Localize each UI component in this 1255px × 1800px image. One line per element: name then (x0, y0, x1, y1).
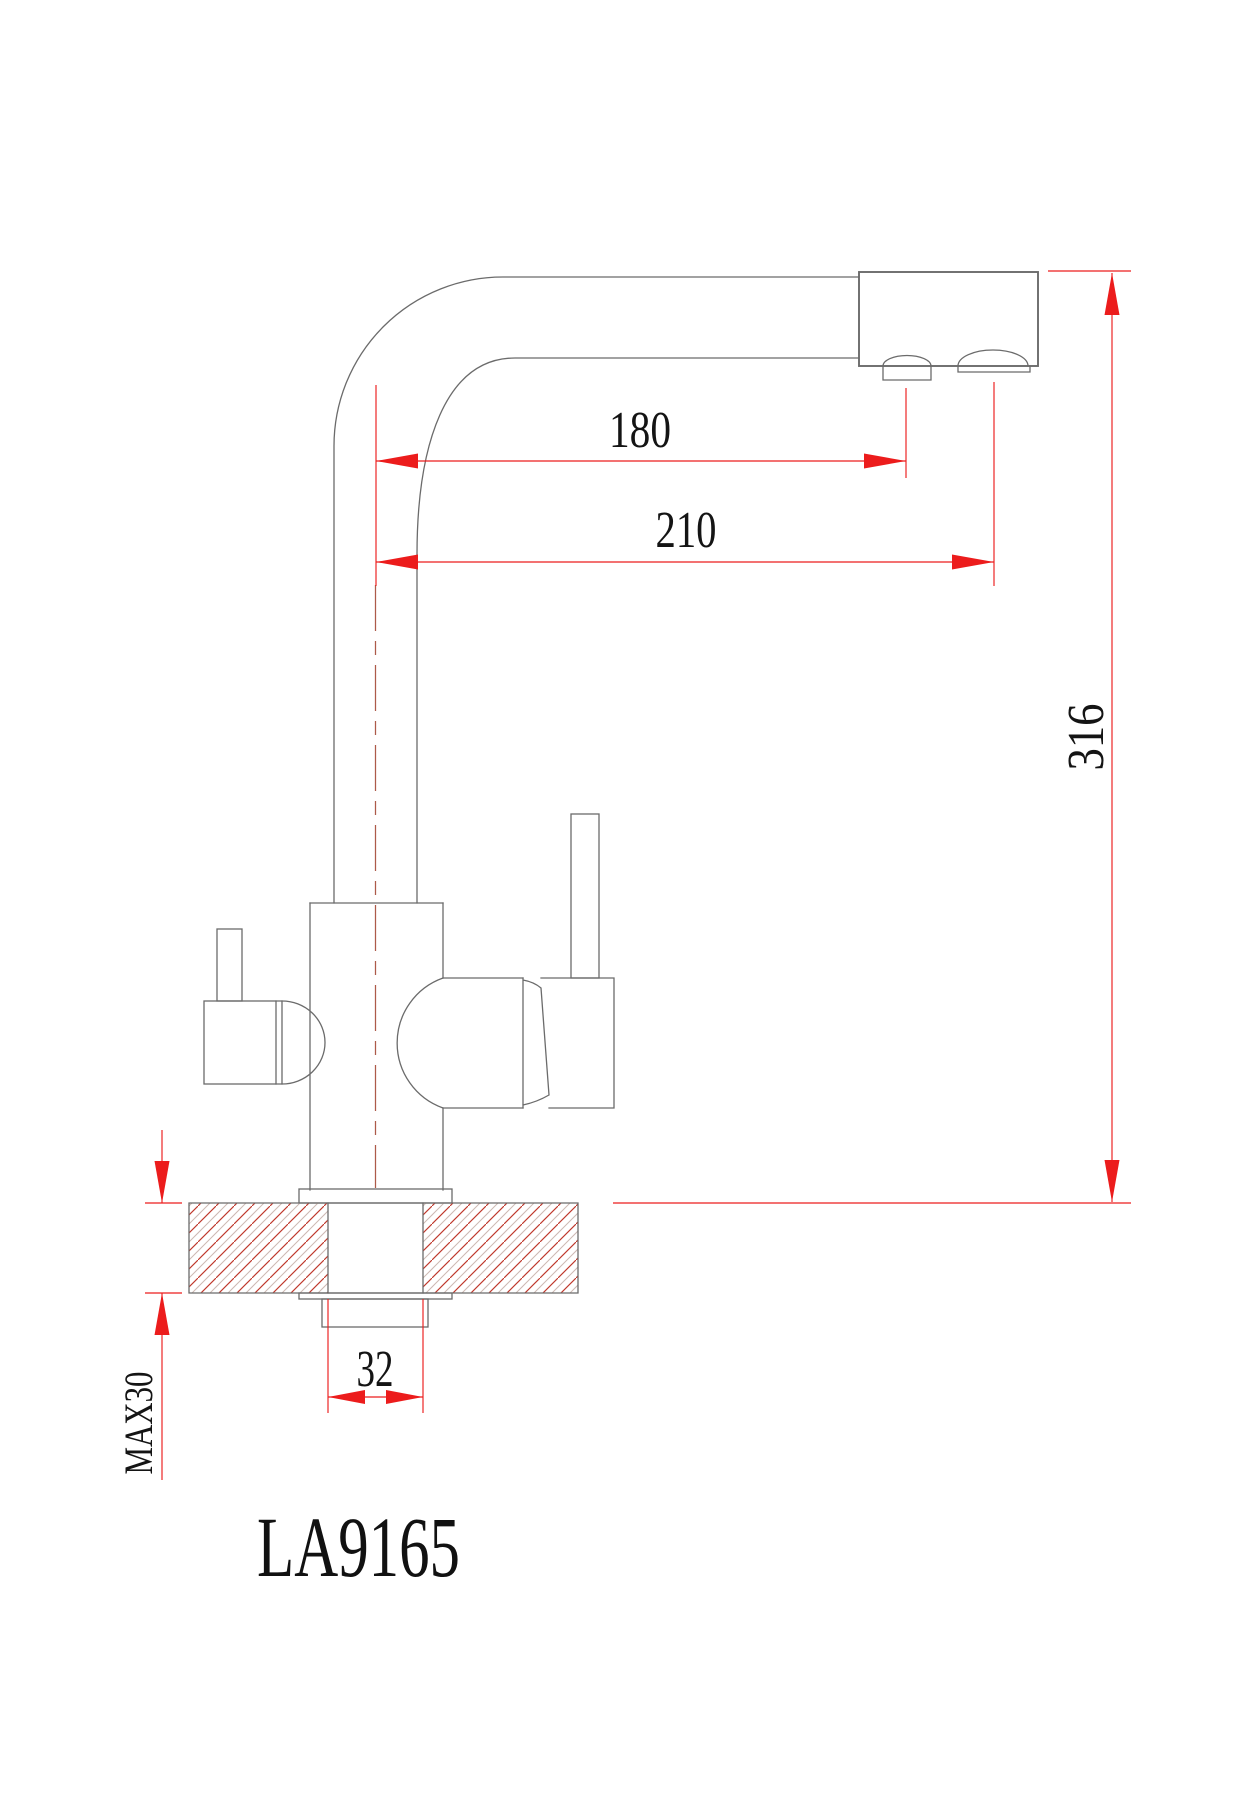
dimension-32: 32 (328, 1299, 423, 1413)
outlet-filtered-dome (883, 356, 931, 367)
base-flange (299, 1189, 452, 1203)
model-number-label: LA9165 (257, 1499, 460, 1595)
dimension-180: 180 (376, 385, 906, 586)
dim-180-label: 180 (609, 402, 671, 459)
right-handle-ball (397, 978, 443, 1108)
dim-316-arrow-top (1105, 273, 1120, 315)
faucet-dimension-drawing: 180 210 316 32 MAX30 LA9165 (0, 0, 1255, 1800)
dim-max30-label: MAX30 (116, 1372, 161, 1475)
technical-drawing-page: 180 210 316 32 MAX30 LA9165 (0, 0, 1255, 1800)
dim-316-arrow-bottom (1105, 1160, 1120, 1202)
right-handle-lever (571, 814, 599, 978)
countertop-hatch-right (423, 1203, 578, 1293)
right-handle-body (541, 978, 614, 1108)
outlet-filtered-collar (883, 366, 931, 380)
spout-tube-outer-edge (334, 277, 859, 903)
left-handle-lever (217, 929, 242, 1001)
mount-shank (328, 1203, 423, 1293)
dim-max30-arrow-down (155, 1161, 170, 1203)
mount-nut (322, 1299, 428, 1327)
dimension-max30: MAX30 (116, 1130, 182, 1480)
dimension-210: 210 (376, 382, 994, 586)
dim-180-arrow-left (376, 454, 418, 469)
dim-max30-arrow-up (155, 1293, 170, 1335)
dim-210-arrow-right (952, 555, 994, 570)
dim-210-arrow-left (376, 555, 418, 570)
left-handle-collar (276, 1001, 282, 1084)
mount-washer (299, 1293, 452, 1299)
right-handle-collar (523, 978, 549, 1108)
dim-32-label: 32 (357, 1341, 394, 1398)
dim-210-label: 210 (656, 502, 717, 559)
left-handle-body (204, 1001, 276, 1084)
countertop-hatch-left (189, 1203, 328, 1293)
dim-316-label: 316 (1058, 704, 1115, 771)
dim-180-arrow-right (864, 454, 906, 469)
left-handle-dome (282, 1001, 325, 1084)
dimension-316: 316 (613, 271, 1131, 1203)
outlet-main-dome (958, 350, 1028, 366)
